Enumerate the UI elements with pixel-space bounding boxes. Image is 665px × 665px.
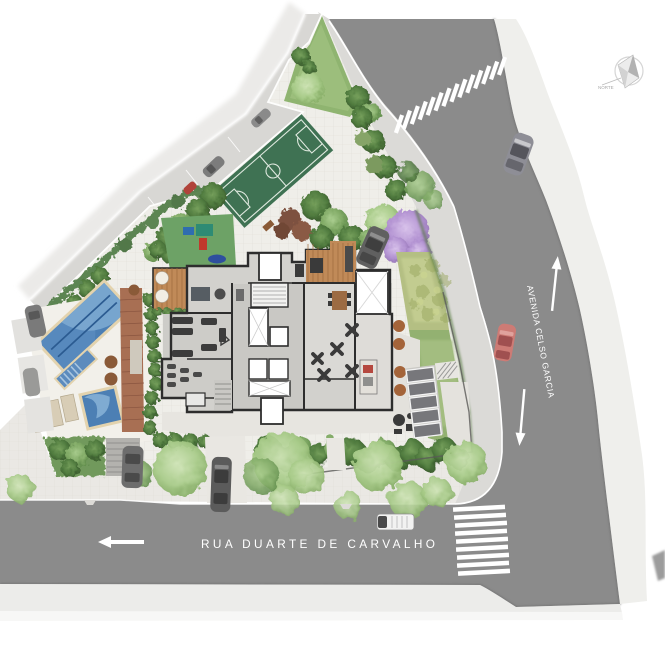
svg-text:RUA DUARTE DE CARVALHO: RUA DUARTE DE CARVALHO (201, 537, 438, 551)
svg-text:NORTE: NORTE (598, 85, 614, 90)
